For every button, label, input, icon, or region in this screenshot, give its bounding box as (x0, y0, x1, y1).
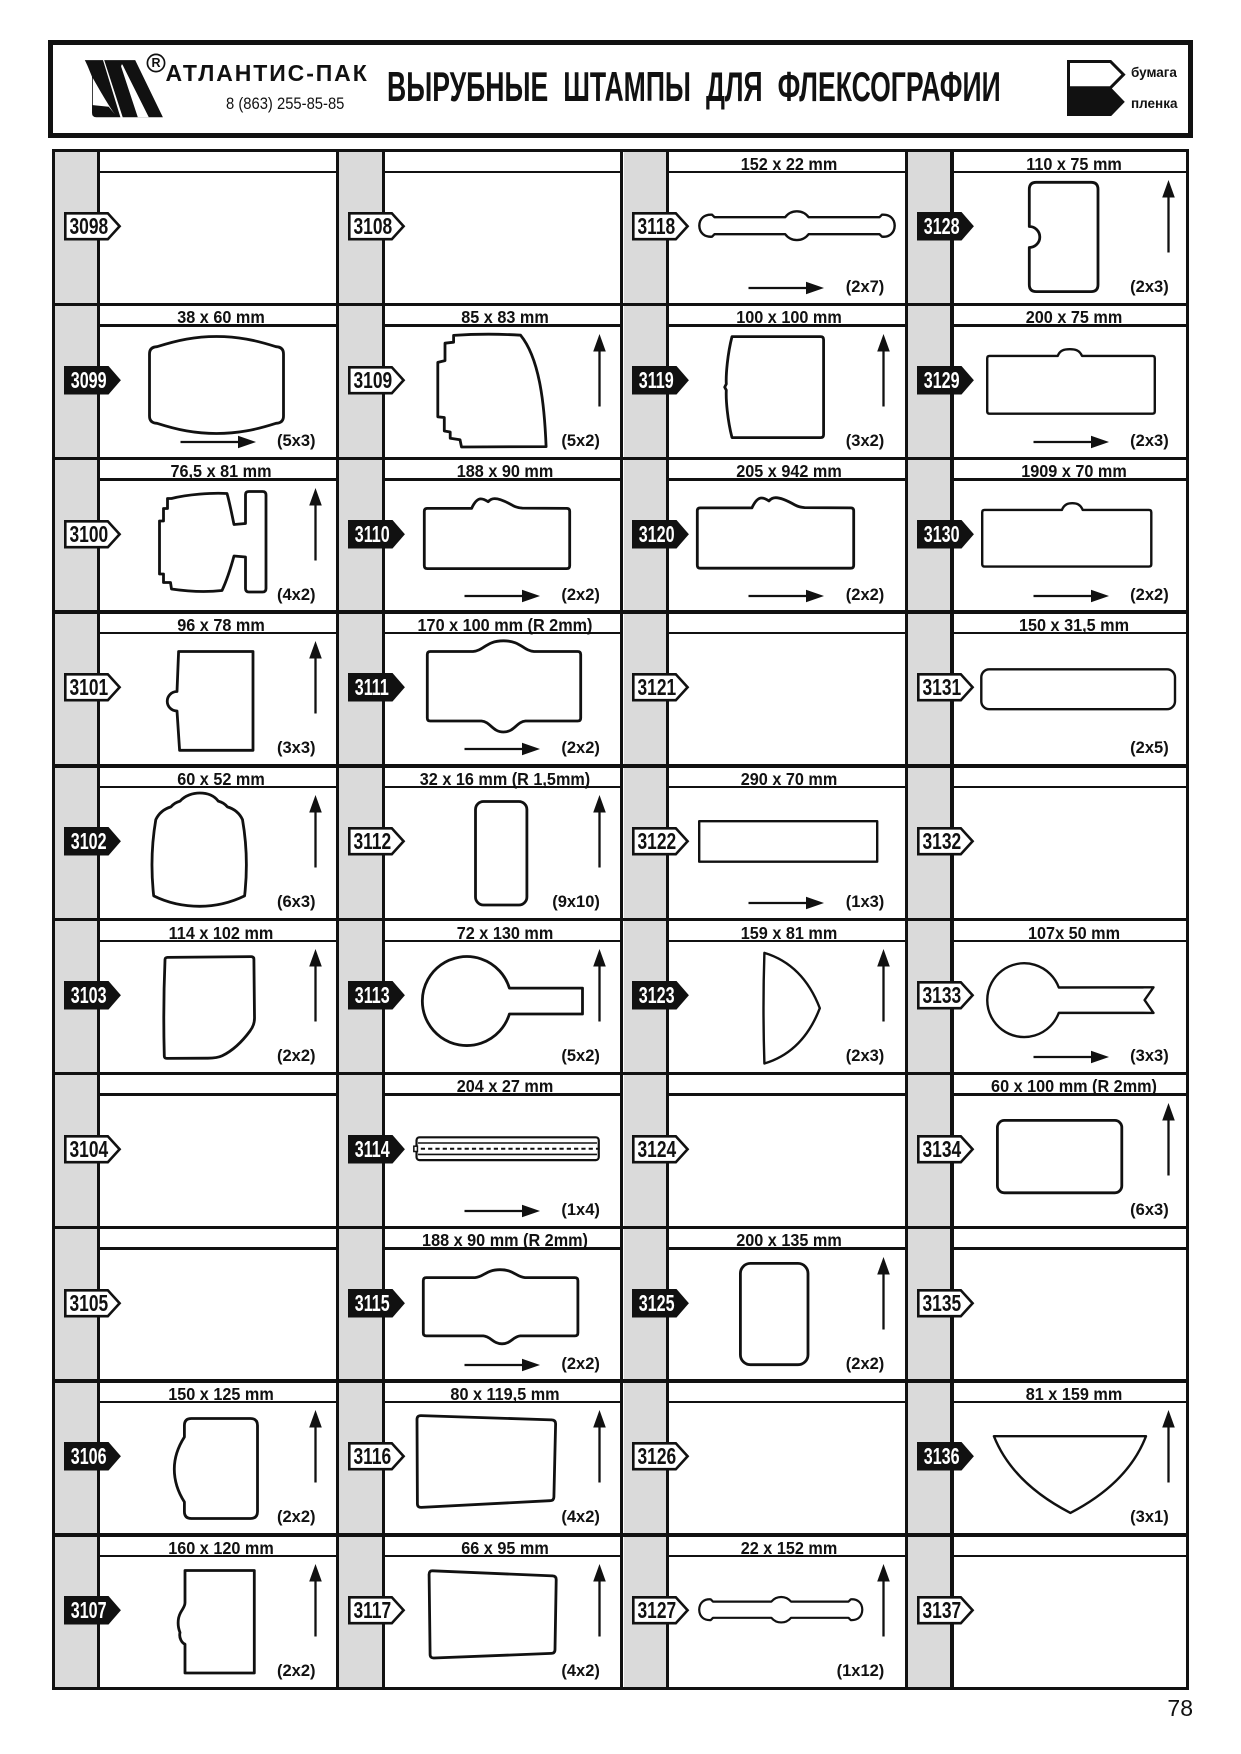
svg-text:R: R (151, 56, 160, 70)
